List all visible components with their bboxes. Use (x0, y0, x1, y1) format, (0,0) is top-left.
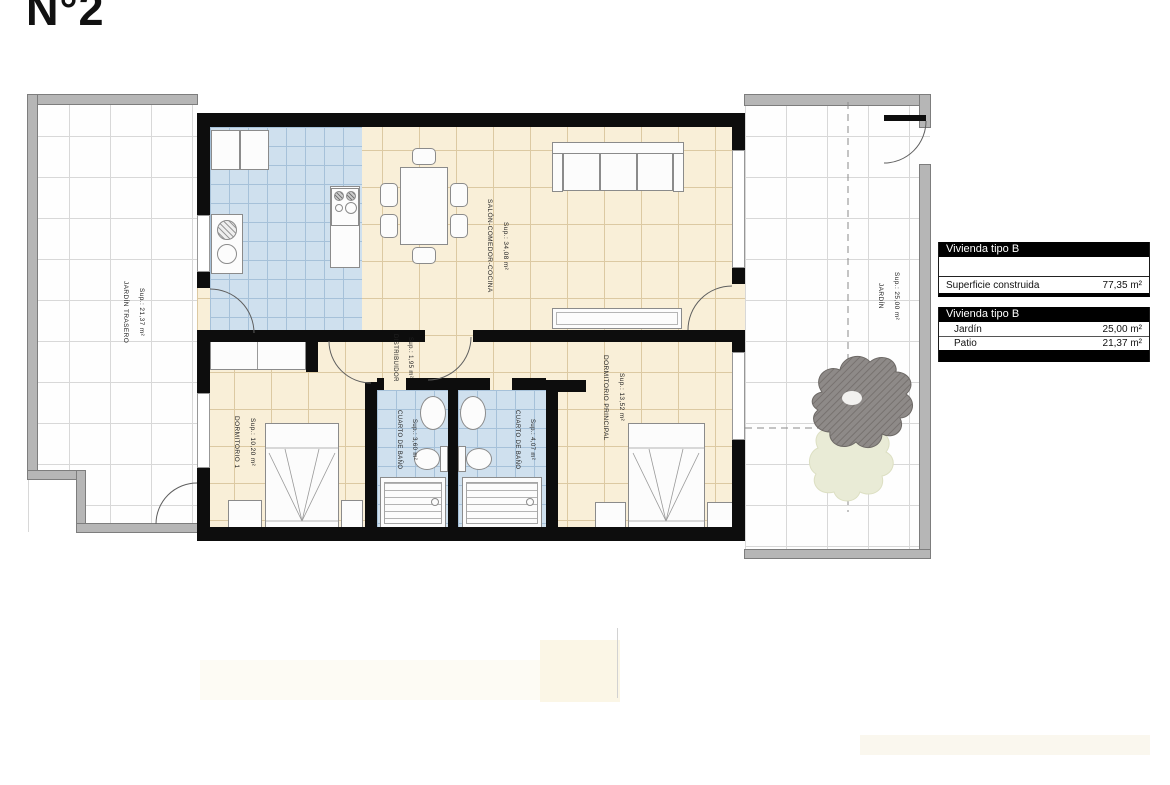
sofa-armrest (552, 153, 563, 192)
wall-right (732, 440, 745, 541)
right-garden-wall-right (920, 165, 930, 558)
room-sup: Sup.: 13,52 m² (615, 345, 628, 450)
wall-dormp-stub (558, 380, 586, 392)
window-dormitorio-1 (197, 393, 210, 468)
room-name: DISTRIBUIDOR (389, 330, 401, 385)
bed-dormitorio-1 (265, 423, 339, 535)
watermark-blob (200, 660, 540, 700)
washbasin-icon (420, 396, 446, 430)
room-name: CUARTO DE BAÑO (511, 392, 523, 487)
sofa-seat (563, 153, 600, 191)
wall-mid (473, 330, 745, 342)
toilet-tank-icon (458, 446, 466, 472)
sink-drainer-icon (217, 220, 237, 240)
shower-drain-icon (431, 498, 439, 506)
right-garden-wall-bottom (745, 550, 930, 558)
legend-row-value: 25,00 m² (1103, 324, 1142, 335)
watermark-blob (860, 735, 1150, 755)
legend-row-value: 77,35 m² (1103, 280, 1142, 291)
label-bano-1: Sup.: 3,60 m² CUARTO DE BAÑO (390, 392, 423, 487)
right-garden-wall-right-upper (920, 95, 930, 127)
legend-row: Superficie construida 77,35 m² (939, 276, 1149, 293)
room-sup: Sup.: 25,00 m² (890, 252, 903, 340)
legend-row-label: Superficie construida (946, 280, 1039, 291)
legend-row: Patio 21,37 m² (939, 337, 1149, 350)
wall-bath-divider (448, 378, 458, 541)
wall-bath-top (512, 378, 546, 390)
toilet-tank-icon (440, 446, 448, 472)
left-garden-wall-left (28, 95, 37, 479)
legend-row-value: 21,37 m² (1103, 338, 1142, 349)
chair (380, 214, 398, 238)
chair (450, 214, 468, 238)
legend-row: Jardín 25,00 m² (939, 322, 1149, 337)
label-dormitorio-principal: Sup.: 13,52 m² DORMITORIO PRINCIPAL (596, 345, 631, 450)
window-salon (732, 150, 745, 268)
wall-right (732, 113, 745, 150)
room-name: DORMITORIO 1 (230, 392, 243, 492)
room-name: JARDÍN (874, 252, 887, 340)
legend-row-label: Patio (954, 338, 977, 349)
stove-burner (335, 204, 343, 212)
legend-header: Vivienda tipo B (939, 307, 1149, 322)
sofa-seat (600, 153, 637, 191)
room-name: SALÓN-COMEDOR-COCINA (483, 190, 496, 302)
wall-bottom (197, 527, 745, 541)
chair (450, 183, 468, 207)
wall-left (197, 113, 210, 215)
label-jardin: Sup.: 25,00 m² JARDÍN (871, 252, 906, 340)
watermark-blob (540, 640, 620, 702)
label-distribuidor: Sup.: 1,95 m² DISTRIBUIDOR (386, 330, 419, 385)
toilet-bowl-icon (466, 448, 492, 470)
watermark-line (617, 628, 618, 698)
legend-header: Vivienda tipo B (939, 242, 1149, 257)
sofa-seat (637, 153, 673, 191)
room-sup: Sup.: 4,07 m² (526, 392, 538, 487)
right-garden-wall-top (745, 95, 930, 105)
wall-right (732, 268, 745, 284)
room-sup: Sup.: 1,95 m² (404, 330, 416, 385)
wall-closet-stub (306, 330, 318, 372)
wall-dorm1-distribuidor (365, 330, 377, 342)
chair (412, 247, 436, 264)
wall-bath-top (377, 378, 384, 390)
left-garden-notch (29, 479, 77, 532)
left-garden-wall-top (28, 95, 197, 104)
room-name: JARDÍN TRASERO (119, 252, 132, 372)
window-kitchen (197, 215, 210, 272)
floor-plan-sheet: Sup.: 21,37 m² JARDÍN TRASERO Sup.: 34,0… (0, 0, 1170, 785)
legend-surface-table: Vivienda tipo B Superficie construida 77… (938, 242, 1150, 297)
room-sup: Sup.: 21,37 m² (135, 252, 148, 372)
room-sup: Sup.: 3,60 m² (408, 392, 420, 487)
wall-left (197, 272, 210, 288)
garden-gate-leaf (884, 115, 926, 121)
wall-dorm1-distribuidor (365, 382, 377, 541)
label-jardin-trasero: Sup.: 21,37 m² JARDÍN TRASERO (116, 252, 151, 372)
wall-bath2-dormp (546, 380, 558, 541)
page-title: N°2 (26, 0, 105, 36)
room-name: CUARTO DE BAÑO (393, 392, 405, 487)
label-salon: Sup.: 34,08 m² SALÓN-COMEDOR-COCINA (480, 190, 515, 302)
kitchen-cabinet (211, 130, 240, 170)
chair (380, 183, 398, 207)
left-garden-step-side (77, 471, 85, 532)
left-garden-floor (28, 95, 197, 532)
dining-table (400, 167, 448, 245)
label-dormitorio-1: Sup.: 10,20 m² DORMITORIO 1 (227, 392, 262, 492)
chair (412, 148, 436, 165)
legend-row-label: Jardín (954, 324, 982, 335)
sideboard-inner (556, 312, 678, 325)
stove-burner (346, 191, 356, 201)
wall-top (197, 113, 745, 127)
wall-left (197, 468, 210, 541)
washbasin-icon (460, 396, 486, 430)
sofa-armrest (673, 153, 684, 192)
stove-burner (345, 202, 357, 214)
room-sup: Sup.: 10,20 m² (246, 392, 259, 492)
room-sup: Sup.: 34,08 m² (499, 190, 512, 302)
left-garden-wall-bottom (77, 524, 197, 532)
label-bano-2: Sup.: 4,07 m² CUARTO DE BAÑO (508, 392, 541, 487)
legend-exterior-table: Vivienda tipo B Jardín 25,00 m² Patio 21… (938, 307, 1150, 362)
window-dormitorio-principal (732, 352, 745, 440)
kitchen-cabinet (240, 130, 269, 170)
stove-burner (334, 191, 344, 201)
sink-bowl-icon (217, 244, 237, 264)
wall-left (197, 333, 210, 393)
shower-drain-icon (526, 498, 534, 506)
bed-dormitorio-principal (628, 423, 705, 535)
room-name: DORMITORIO PRINCIPAL (599, 345, 612, 450)
legend-footer-bar (939, 350, 1149, 362)
